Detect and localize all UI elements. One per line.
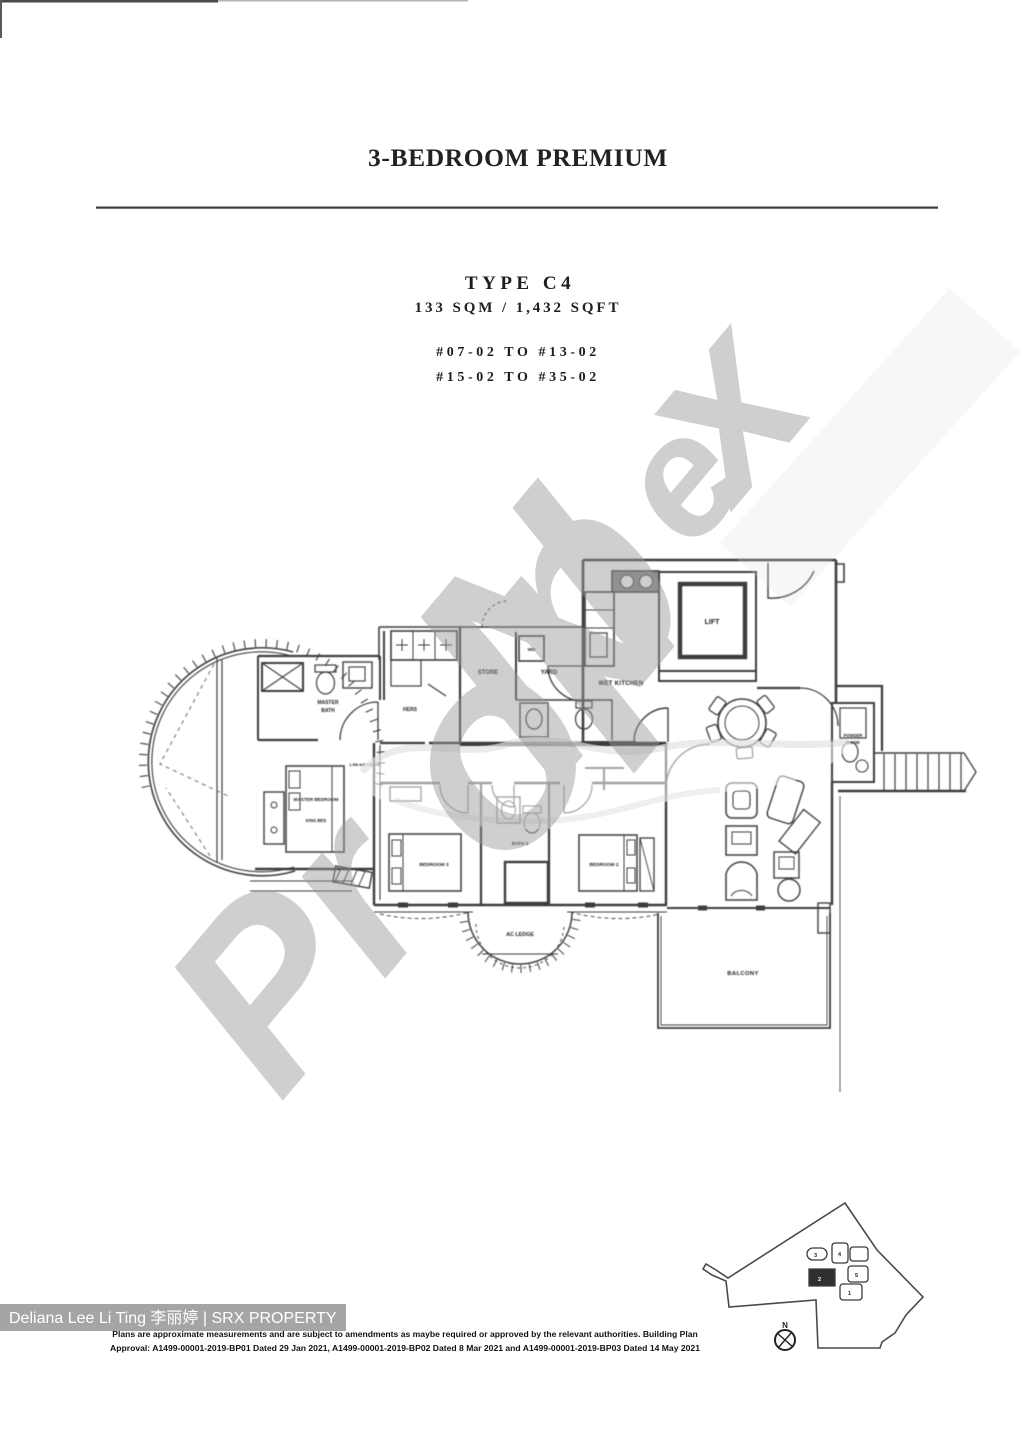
svg-text:Deliana Lee Li Ting 李丽婷 | SRX: Deliana Lee Li Ting 李丽婷 | SRX PROPERTY	[9, 1309, 337, 1327]
svg-text:3-BEDROOM PREMIUM: 3-BEDROOM PREMIUM	[368, 143, 668, 172]
svg-text:#15-02 TO #35-02: #15-02 TO #35-02	[436, 370, 600, 385]
svg-text:133 SQM / 1,432 SQFT: 133 SQM / 1,432 SQFT	[415, 300, 622, 316]
svg-text:2: 2	[818, 1277, 821, 1283]
svg-text:5: 5	[855, 1273, 858, 1279]
svg-text:#07-02 TO #13-02: #07-02 TO #13-02	[436, 345, 600, 360]
svg-text:1: 1	[848, 1291, 851, 1297]
svg-text:POWDER: POWDER	[844, 733, 863, 738]
svg-text:TYPE C4: TYPE C4	[465, 273, 575, 294]
svg-text:BEDROOM 3: BEDROOM 3	[419, 862, 448, 868]
svg-text:Plans are approximate measurem: Plans are approximate measurements and a…	[112, 1329, 698, 1339]
svg-text:N: N	[782, 1321, 788, 1330]
svg-text:3: 3	[814, 1253, 817, 1259]
svg-text:BALCONY: BALCONY	[727, 971, 758, 977]
svg-text:AC LEDGE: AC LEDGE	[506, 932, 534, 938]
svg-text:Approval: A1499-00001-2019-BP0: Approval: A1499-00001-2019-BP01 Dated 29…	[110, 1343, 700, 1353]
